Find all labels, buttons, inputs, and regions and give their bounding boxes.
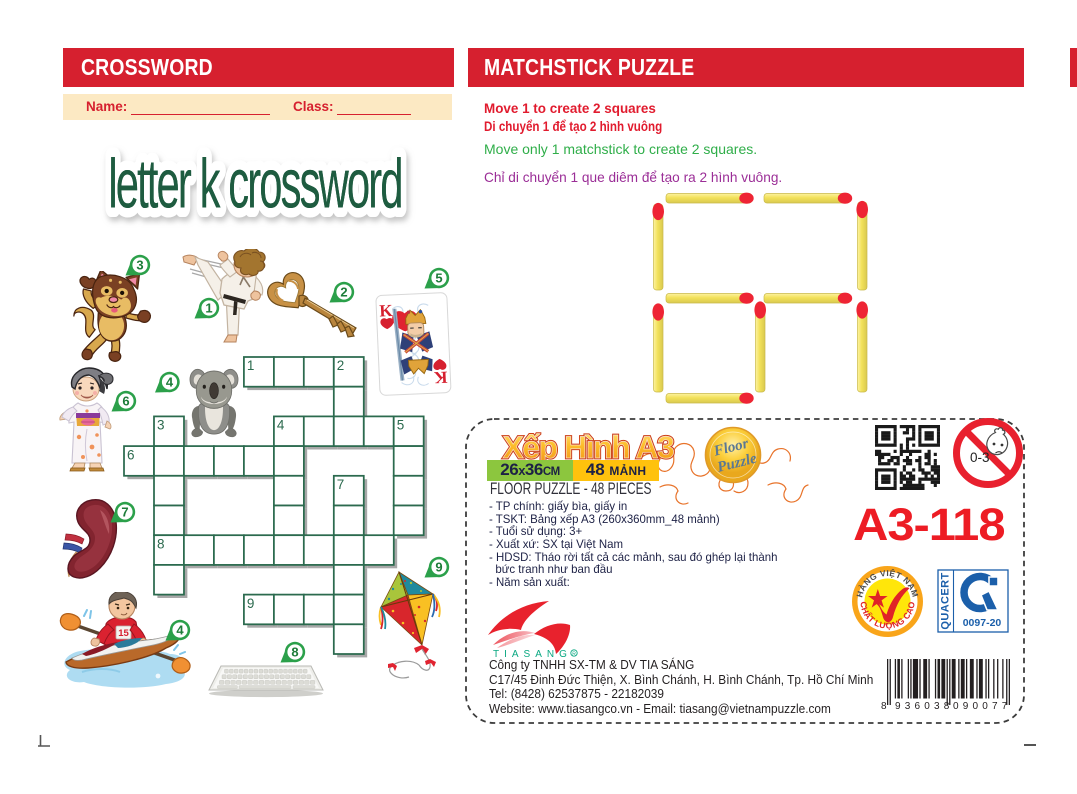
svg-text:QUACERT: QUACERT — [940, 572, 952, 629]
svg-text:8: 8 — [291, 645, 298, 660]
svg-text:0-3: 0-3 — [970, 450, 990, 465]
svg-text:090077: 090077 — [953, 701, 1012, 711]
svg-text:letter k crossword: letter k crossword — [108, 146, 401, 224]
svg-text:8: 8 — [881, 701, 887, 711]
svg-text:6: 6 — [122, 394, 129, 409]
svg-text:5: 5 — [435, 271, 442, 286]
svg-text:4: 4 — [166, 375, 174, 390]
svg-text:7: 7 — [121, 505, 128, 520]
svg-text:1: 1 — [205, 301, 212, 316]
svg-text:936038: 936038 — [895, 701, 954, 711]
svg-text:4: 4 — [176, 623, 184, 638]
svg-text:3: 3 — [136, 258, 143, 273]
svg-text:0097-20: 0097-20 — [963, 617, 1002, 629]
svg-text:2: 2 — [340, 285, 347, 300]
svg-text:9: 9 — [435, 560, 442, 575]
